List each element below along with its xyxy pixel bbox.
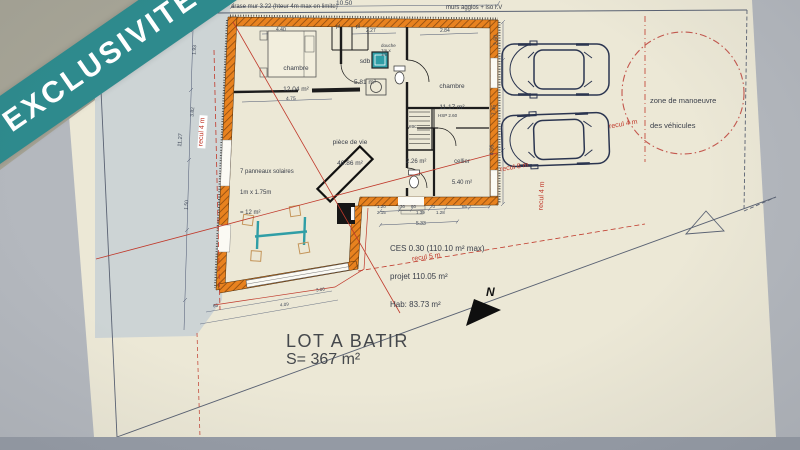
dim-label-b80: 80 [411,204,416,209]
dim-label-left_382: 3.82 [189,107,196,117]
dim-label-b139: 1.39 [416,210,425,215]
plan-photo: arase mur 3.22 (hteur 4m max en limite) … [0,0,800,450]
dim-label-right_745: 7.45 [491,105,497,116]
dim-label-b533: 5.33 [416,221,426,227]
screen-bezel [0,437,800,450]
dim-label-b65: 65 [213,303,219,309]
dim-label-w227: 2.27 [366,28,376,34]
dim-label-b85: 85 [462,204,467,209]
dim-label-b215: 2.15 [377,210,386,215]
dim-label-b120: 1.20 [377,204,386,209]
dim-label-b70: 70 [430,204,435,209]
dim-label-right_260: 2.60 [493,35,499,46]
dim-label-w440: 4.40 [276,27,286,33]
dim-label-right_456: 4.56 [489,145,495,156]
dim-label-left_total: 11.27 [177,133,184,147]
dim-label-w475: 4.75 [286,96,296,102]
dim-label-left_150: 1.50 [183,200,190,210]
dim-label-b128: 1.28 [436,210,445,215]
dim-label-b409: 4.09 [280,301,289,307]
dim-label-b306: 3.06 [316,286,325,292]
dim-label-left_193: 1.93 [191,45,198,55]
dim-label-b30: 30 [400,204,405,209]
dim-label-w284: 2.84 [440,28,450,34]
dim-label-top: 10.50 [336,0,352,7]
